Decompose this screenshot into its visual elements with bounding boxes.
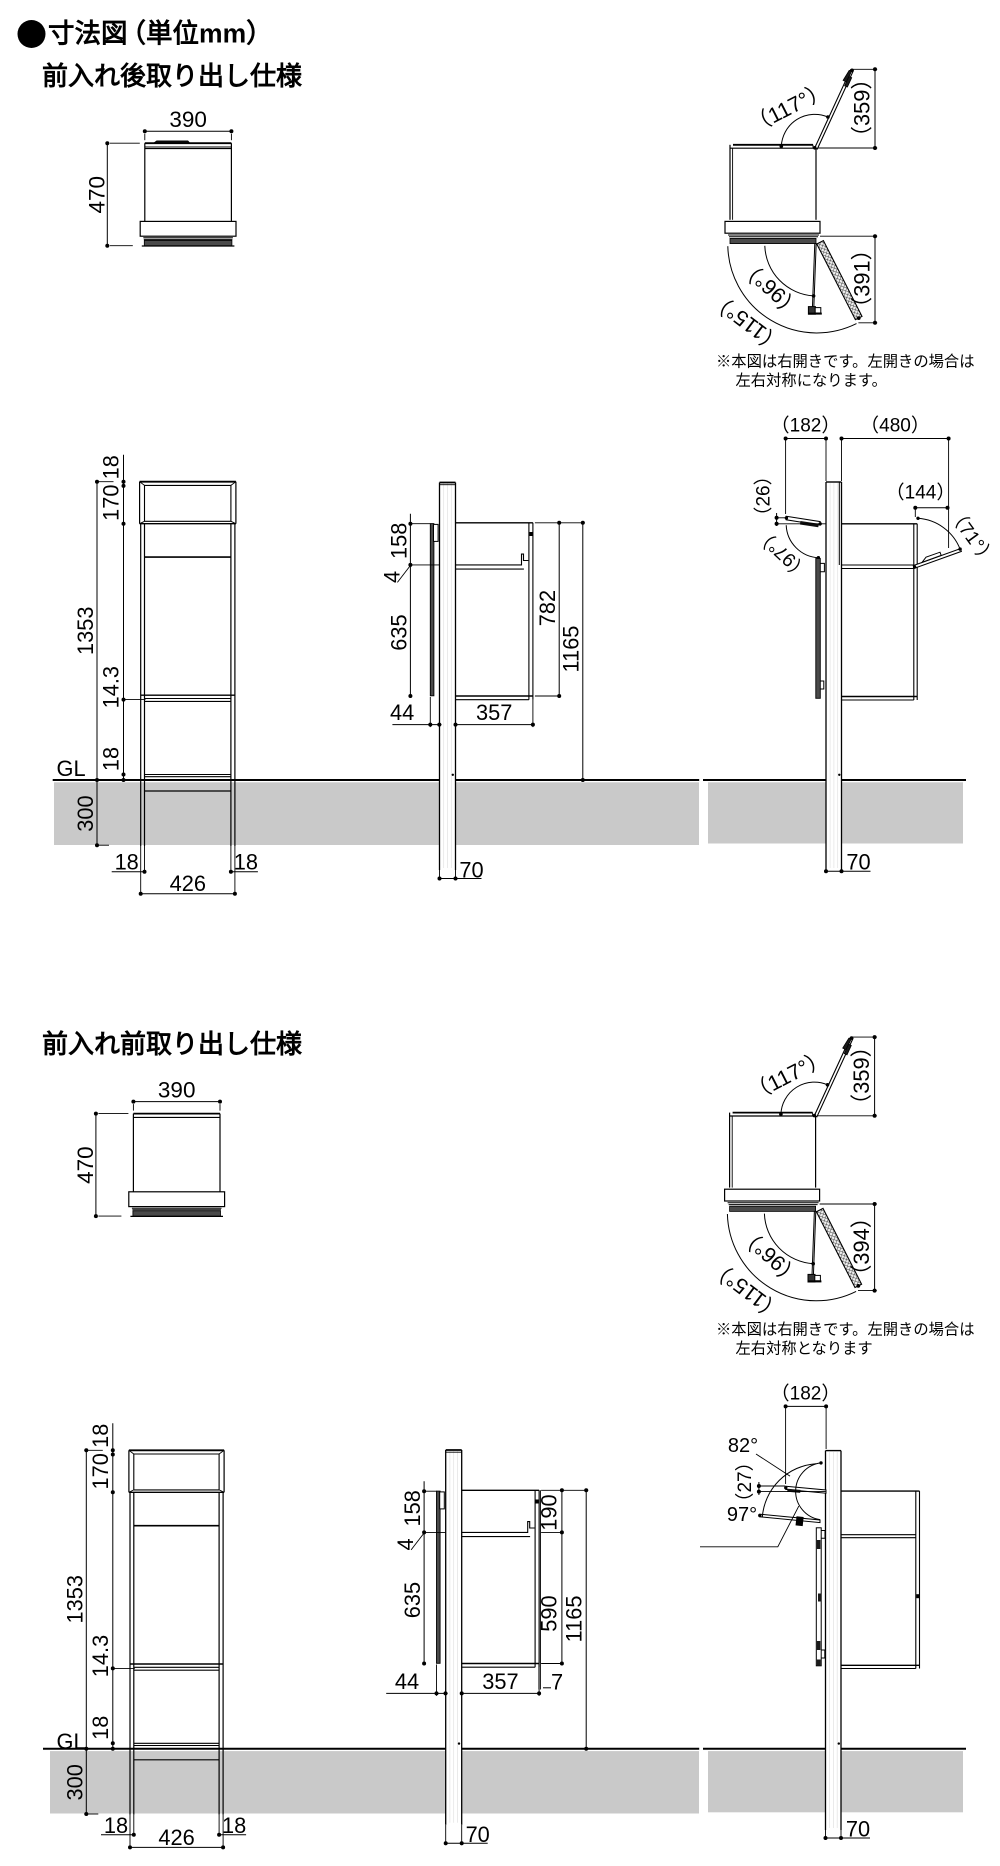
svg-text:（182）: （182）	[771, 1383, 841, 1405]
svg-text:44: 44	[390, 700, 414, 725]
svg-text:357: 357	[482, 1669, 518, 1694]
svg-text:（359）: （359）	[849, 1036, 874, 1116]
svg-text:左右対称となります: 左右対称となります	[736, 1341, 873, 1358]
svg-text:158: 158	[400, 1490, 425, 1526]
svg-text:寸法図: 寸法図	[48, 19, 128, 49]
svg-text:635: 635	[400, 1582, 425, 1618]
svg-text:390: 390	[158, 1077, 196, 1102]
svg-text:（27）: （27）	[734, 1452, 756, 1511]
svg-text:300: 300	[73, 795, 98, 831]
svg-text:18: 18	[104, 1813, 128, 1838]
svg-text:前入れ前取り出し仕様: 前入れ前取り出し仕様	[42, 1029, 303, 1059]
svg-text:44: 44	[395, 1669, 419, 1694]
svg-text:470: 470	[84, 176, 109, 214]
svg-text:82°: 82°	[728, 1435, 758, 1457]
svg-text:300: 300	[62, 1764, 87, 1800]
svg-text:（26）: （26）	[753, 466, 775, 525]
svg-text:（182）: （182）	[771, 415, 841, 437]
svg-text:70: 70	[459, 858, 483, 883]
svg-text:18: 18	[88, 1424, 113, 1448]
svg-text:1165: 1165	[562, 1595, 587, 1642]
svg-text:70: 70	[846, 850, 870, 875]
svg-text:4: 4	[393, 1538, 418, 1550]
svg-text:18: 18	[88, 1716, 113, 1740]
svg-text:（359）: （359）	[849, 68, 874, 148]
svg-text:GL: GL	[57, 756, 86, 781]
svg-text:4: 4	[379, 571, 404, 583]
svg-text:（391）: （391）	[849, 239, 874, 319]
svg-text:70: 70	[846, 1817, 870, 1842]
svg-text:（394）: （394）	[849, 1206, 874, 1286]
svg-text:14.3: 14.3	[88, 1635, 113, 1677]
svg-text:426: 426	[158, 1825, 194, 1850]
svg-text:70: 70	[466, 1822, 490, 1847]
svg-text:1353: 1353	[62, 1575, 87, 1624]
svg-text:（単位mm）: （単位mm）	[120, 19, 273, 49]
svg-text:18: 18	[99, 455, 124, 479]
svg-text:170: 170	[88, 1453, 113, 1489]
svg-text:357: 357	[476, 700, 512, 725]
svg-text:1353: 1353	[73, 606, 98, 655]
svg-text:18: 18	[115, 850, 139, 875]
svg-text:18: 18	[222, 1813, 246, 1838]
svg-text:1165: 1165	[559, 626, 584, 673]
svg-text:635: 635	[386, 614, 411, 650]
svg-text:GL: GL	[57, 1729, 86, 1754]
svg-text:390: 390	[169, 107, 207, 132]
svg-text:426: 426	[170, 871, 206, 896]
svg-text:97°: 97°	[727, 1504, 757, 1526]
svg-text:18: 18	[234, 850, 258, 875]
svg-text:左右対称になります。: 左右対称になります。	[736, 373, 887, 390]
svg-text:170: 170	[99, 485, 124, 521]
svg-text:470: 470	[73, 1146, 98, 1184]
svg-text:14.3: 14.3	[99, 666, 124, 708]
svg-text:158: 158	[386, 523, 411, 559]
svg-text:782: 782	[535, 590, 560, 626]
svg-text:（144）: （144）	[886, 482, 956, 504]
svg-text:前入れ後取り出し仕様: 前入れ後取り出し仕様	[42, 61, 303, 91]
svg-text:（480）: （480）	[860, 415, 930, 437]
svg-text:7: 7	[551, 1670, 563, 1695]
svg-text:※本図は右開きです。左開きの場合は: ※本図は右開きです。左開きの場合は	[716, 1322, 975, 1339]
svg-text:18: 18	[99, 747, 124, 771]
svg-text:※本図は右開きです。左開きの場合は: ※本図は右開きです。左開きの場合は	[716, 354, 975, 371]
